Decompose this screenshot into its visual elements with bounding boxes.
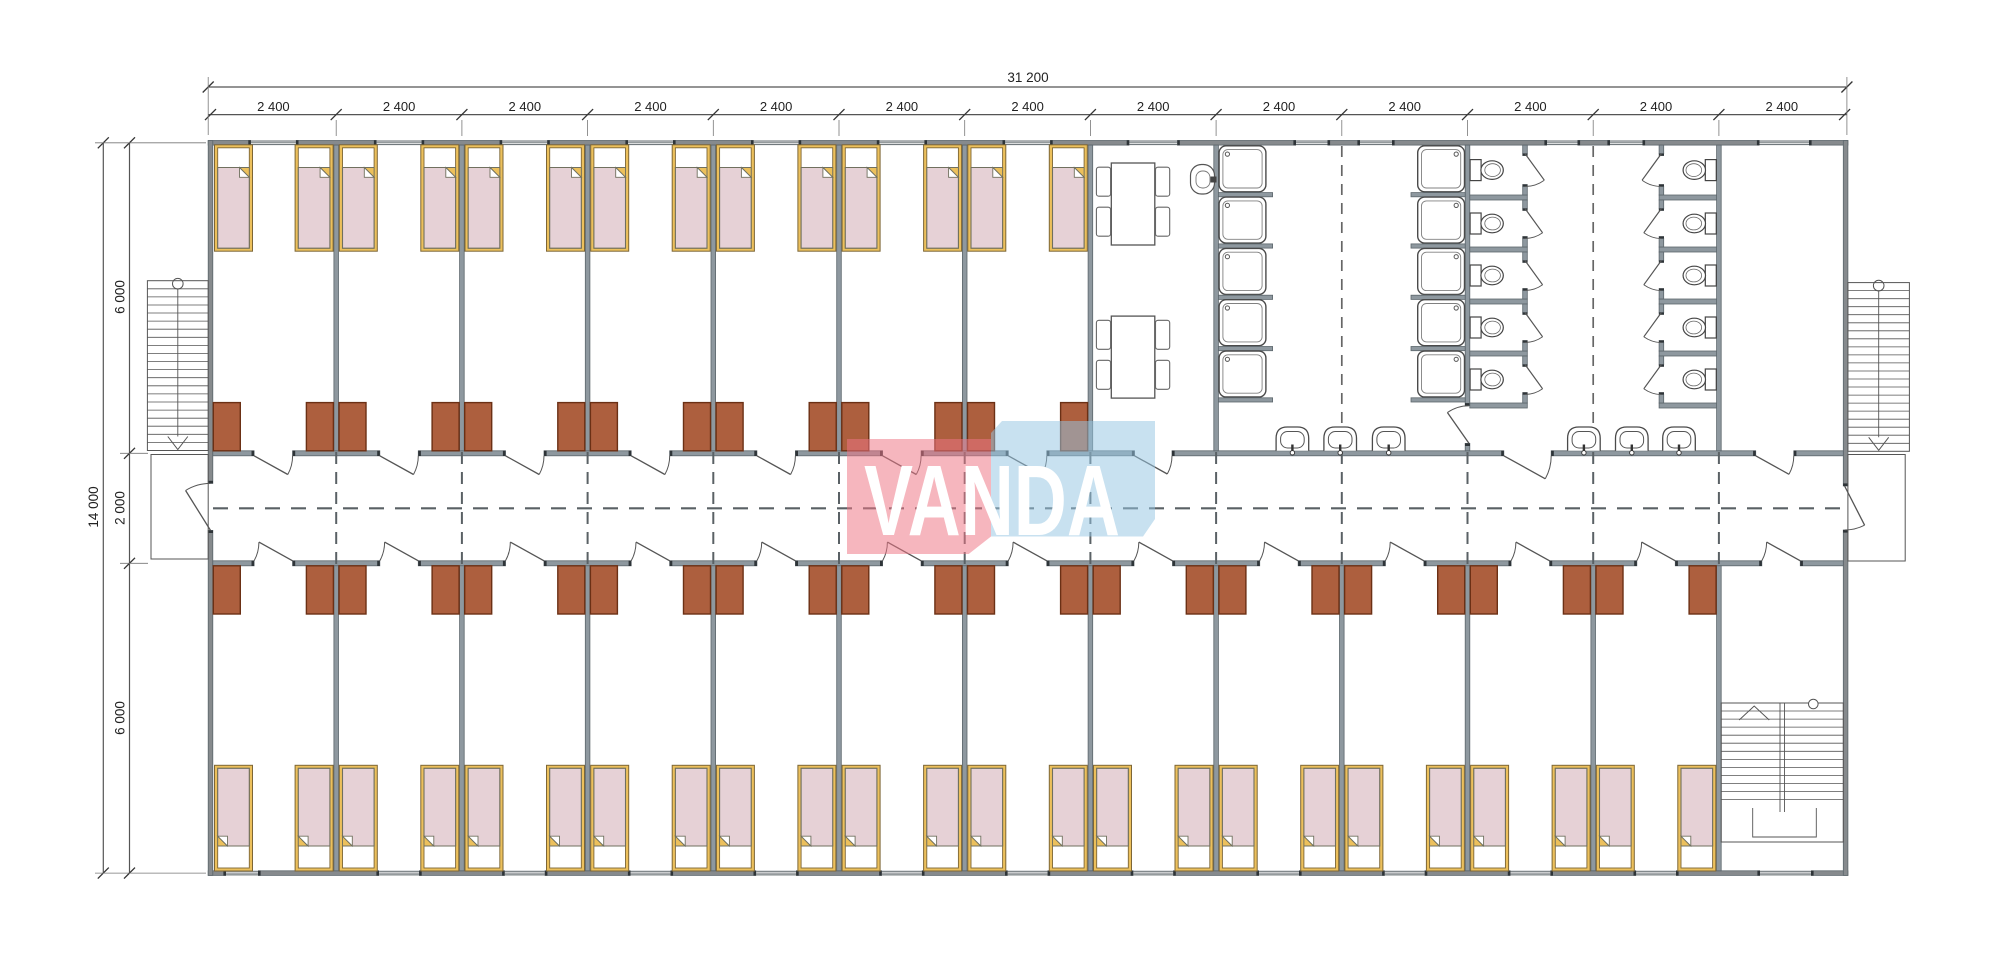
svg-text:2 000: 2 000 — [113, 491, 128, 525]
svg-text:6 000: 6 000 — [113, 280, 128, 314]
svg-text:2 400: 2 400 — [1137, 99, 1170, 114]
svg-text:6 000: 6 000 — [113, 701, 128, 735]
svg-text:2 400: 2 400 — [1263, 99, 1296, 114]
svg-text:2 400: 2 400 — [634, 99, 667, 114]
svg-text:31 200: 31 200 — [1007, 70, 1048, 85]
svg-text:2 400: 2 400 — [760, 99, 793, 114]
svg-text:2 400: 2 400 — [886, 99, 919, 114]
svg-text:2 400: 2 400 — [257, 99, 290, 114]
svg-text:VANDA: VANDA — [864, 445, 1120, 557]
svg-text:2 400: 2 400 — [1640, 99, 1673, 114]
svg-text:2 400: 2 400 — [1514, 99, 1547, 114]
svg-text:2 400: 2 400 — [1011, 99, 1044, 114]
svg-text:2 400: 2 400 — [383, 99, 416, 114]
svg-text:2 400: 2 400 — [1766, 99, 1799, 114]
svg-text:2 400: 2 400 — [509, 99, 542, 114]
svg-text:14 000: 14 000 — [86, 486, 101, 527]
svg-text:2 400: 2 400 — [1388, 99, 1421, 114]
